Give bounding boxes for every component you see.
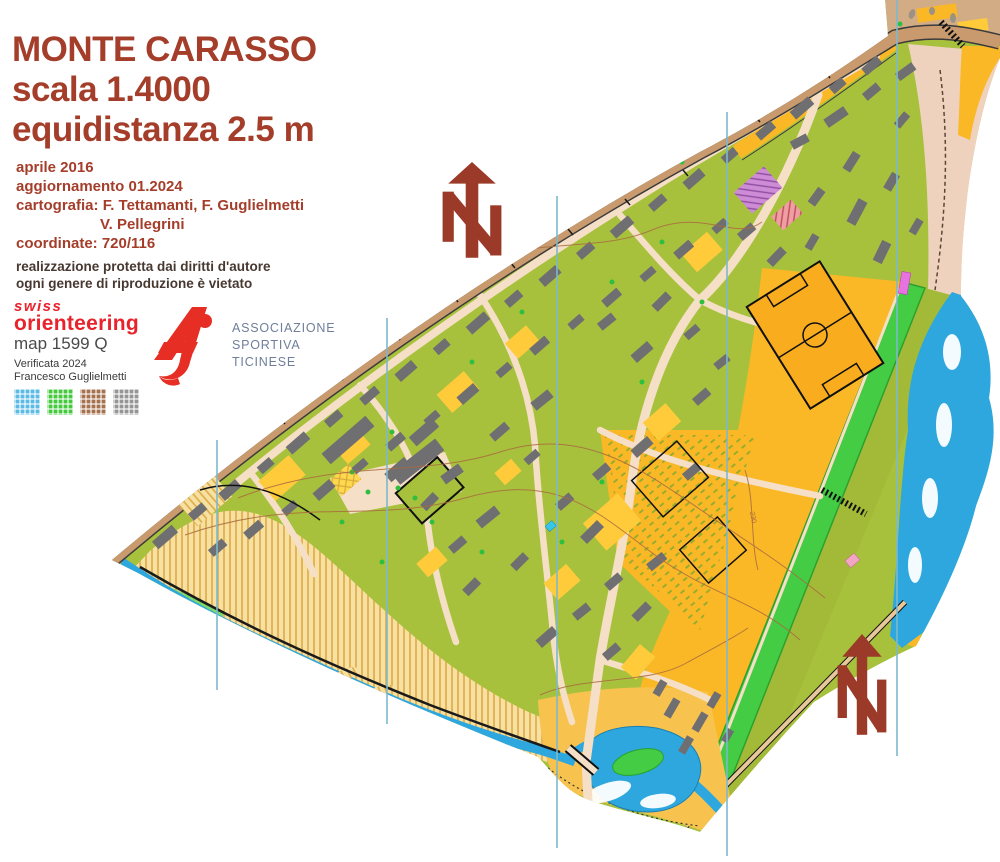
map-title: MONTE CARASSO scala 1.4000 equidistanza … [12, 30, 317, 150]
asti-logo: ASSOCIAZIONE SPORTIVA TICINESE [150, 304, 335, 390]
asti-line-2: SPORTIVA [232, 337, 335, 354]
asti-monogram-icon [150, 304, 220, 390]
asti-line-3: TICINESE [232, 354, 335, 371]
info-coordinates: coordinate: 720/116 [16, 234, 304, 253]
title-line-1: MONTE CARASSO [12, 30, 317, 70]
swiss-logo-main: orienteering [14, 314, 149, 334]
map-sheet: 230 [0, 0, 1000, 862]
info-cartographer-2: V. Pellegrini [16, 215, 304, 234]
pool [773, 83, 787, 96]
map-info: aprile 2016 aggiornamento 01.2024 cartog… [16, 158, 304, 253]
verifier-name: Francesco Guglielmetti [14, 371, 149, 384]
info-update: aggiornamento 01.2024 [16, 177, 304, 196]
copyright-line-1: realizzazione protetta dai diritti d'aut… [16, 258, 271, 275]
swiss-orienteering-logo: swiss orienteering map 1599 Q Verificata… [14, 300, 149, 415]
print-check-square-green [47, 389, 73, 415]
print-check-squares [14, 389, 149, 415]
swiss-logo-mapref: map 1599 Q [14, 334, 149, 353]
print-check-square-cyan [14, 389, 40, 415]
copyright-notice: realizzazione protetta dai diritti d'aut… [16, 258, 271, 292]
title-line-3: equidistanza 2.5 m [12, 110, 317, 150]
info-date: aprile 2016 [16, 158, 304, 177]
copyright-line-2: ogni genere di riproduzione è vietato [16, 275, 271, 292]
north-arrow-icon [443, 162, 502, 258]
info-cartography: cartografia: F. Tettamanti, F. Guglielme… [16, 196, 304, 215]
print-check-square-gray [113, 389, 139, 415]
verified-label: Verificata 2024 [14, 358, 149, 371]
title-line-2: scala 1.4000 [12, 70, 317, 110]
print-check-square-brown [80, 389, 106, 415]
asti-line-1: ASSOCIAZIONE [232, 320, 335, 337]
